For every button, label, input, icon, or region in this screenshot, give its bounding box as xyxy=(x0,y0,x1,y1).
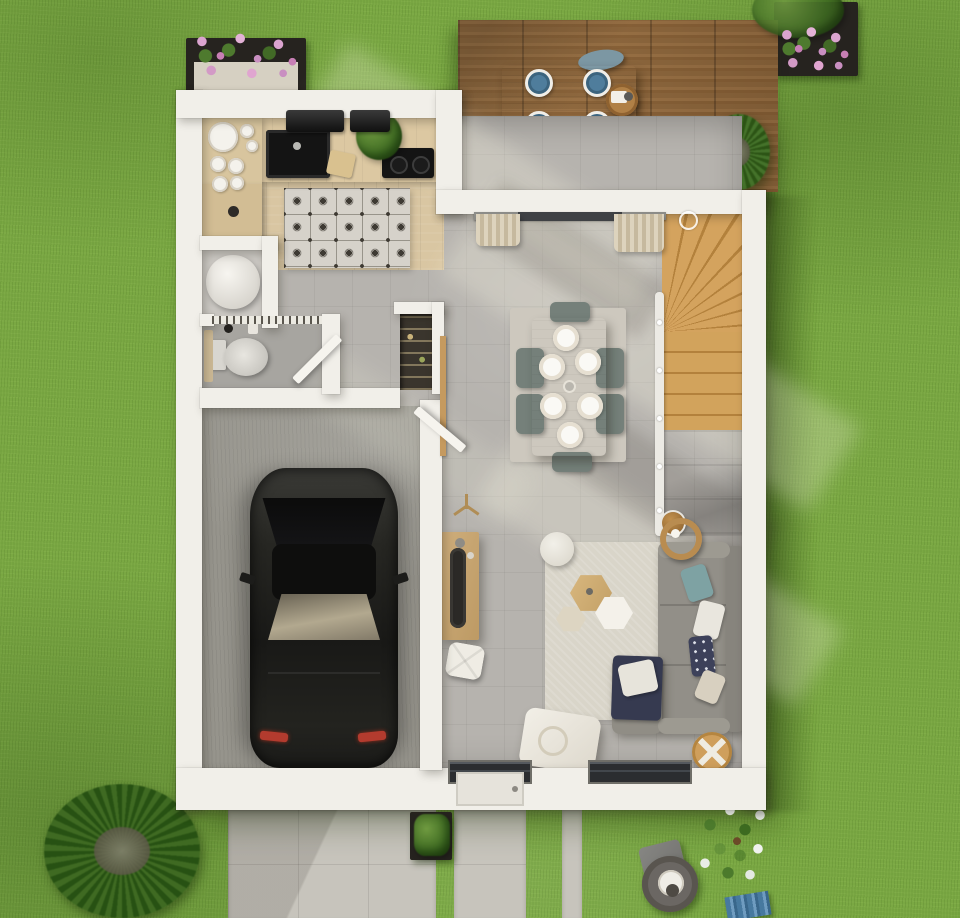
wall-garage-top xyxy=(200,388,400,408)
wc-shelf xyxy=(204,330,213,382)
dish-stack xyxy=(212,176,228,192)
dinner-plate xyxy=(575,349,601,375)
baluster xyxy=(657,464,662,469)
hall-pouf xyxy=(444,641,485,681)
bowl xyxy=(228,206,239,217)
wall-left xyxy=(176,90,202,810)
dish-stack xyxy=(208,122,238,152)
pantry-shelves xyxy=(400,314,434,390)
floor-lamp xyxy=(660,518,702,560)
driveway xyxy=(228,808,436,918)
dinner-plate xyxy=(540,393,566,419)
cutting-board xyxy=(326,150,356,179)
dish-stack xyxy=(228,158,244,174)
curtain-left xyxy=(476,214,520,246)
console-deco xyxy=(467,552,474,559)
baluster xyxy=(657,368,662,373)
lounge-chair-cushion xyxy=(538,726,568,756)
coffee-table-deco xyxy=(586,588,593,595)
table-carafe xyxy=(565,382,574,391)
burner xyxy=(390,156,408,174)
car-rear-window xyxy=(268,594,380,640)
console-deco xyxy=(455,538,465,548)
sofa-armrest xyxy=(658,718,730,734)
dish-stack xyxy=(230,176,244,190)
dish xyxy=(240,124,254,138)
walkway xyxy=(454,808,526,918)
window-bottom-right xyxy=(590,762,690,782)
range-hood xyxy=(286,110,344,132)
dinner-plate xyxy=(577,393,603,419)
floor-lamp-bulb xyxy=(671,529,680,538)
ceiling-light-marker xyxy=(679,211,698,230)
baluster xyxy=(657,508,662,513)
stairs-winder xyxy=(662,214,742,332)
wicker-basket xyxy=(692,732,732,772)
stairs-railing xyxy=(655,292,664,536)
curtain-right xyxy=(614,214,664,252)
blossom-tree xyxy=(690,796,790,892)
baluster xyxy=(657,320,662,325)
dinner-plate xyxy=(553,325,579,351)
floor-plan-scene xyxy=(0,0,960,918)
shrub xyxy=(414,814,450,856)
range-hood xyxy=(350,110,390,132)
garden-table-kettle xyxy=(666,884,679,897)
front-door-handle xyxy=(512,786,518,792)
flower-pot-flowers xyxy=(778,18,852,74)
blue-plate xyxy=(525,69,553,97)
toilet-bowl xyxy=(224,338,268,376)
baluster xyxy=(657,416,662,421)
kitchen-sink xyxy=(266,130,330,178)
coat-stand-arm xyxy=(466,505,480,516)
stairs-treads xyxy=(662,332,742,430)
dinner-plate xyxy=(539,354,565,380)
wall-top-living xyxy=(436,190,766,214)
wall-closet-side xyxy=(262,236,278,328)
blue-mat xyxy=(724,891,771,918)
coat-stand xyxy=(450,492,482,524)
dinner-plate xyxy=(557,422,583,448)
wc-accessory xyxy=(224,324,233,333)
console-runner xyxy=(450,548,466,628)
sliding-door-glass xyxy=(518,212,622,221)
car-trunk-line xyxy=(268,672,380,674)
faucet xyxy=(293,142,301,150)
serving-tray xyxy=(606,84,638,116)
water-heater xyxy=(206,255,260,309)
wc-door-track xyxy=(212,316,322,324)
car-windshield xyxy=(260,498,388,550)
flower-box-flowers xyxy=(188,24,304,82)
cement-tile-rug xyxy=(284,188,410,268)
paver-strip xyxy=(562,808,582,918)
wall-right xyxy=(742,190,766,810)
dish xyxy=(246,140,258,152)
burner xyxy=(412,156,430,174)
car-roof xyxy=(272,544,376,600)
round-pouf xyxy=(540,532,574,566)
wall-garage-right xyxy=(420,400,442,770)
dish-stack xyxy=(210,156,226,172)
